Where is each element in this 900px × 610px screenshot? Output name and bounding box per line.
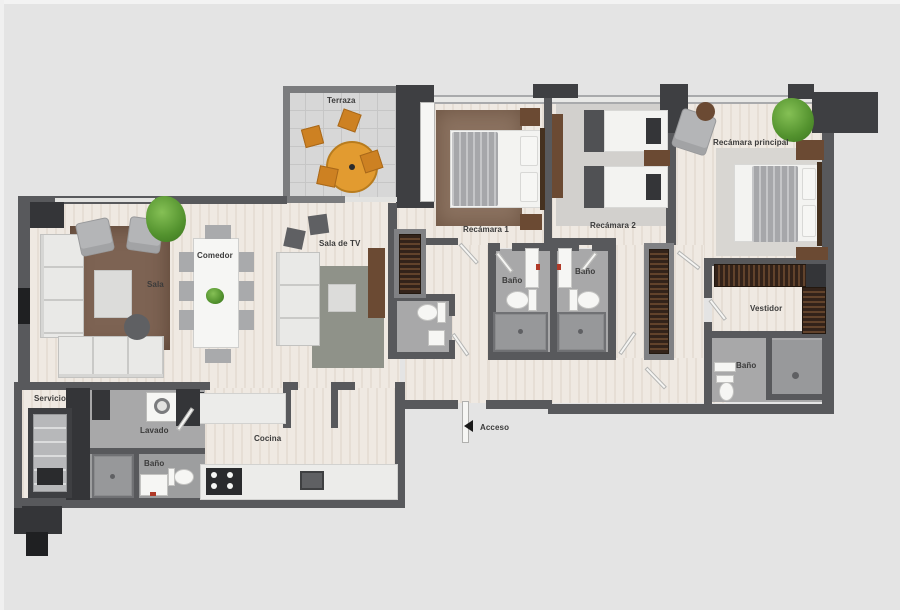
toilet-powder-tank	[437, 302, 446, 323]
wall-shower-divider-servicio	[134, 452, 139, 500]
block-below-servicio-2	[26, 532, 48, 556]
shower-master-wall-bottom	[766, 394, 826, 400]
pillow-master-a	[802, 168, 816, 200]
wall-bottom-right	[548, 404, 834, 414]
dining-chair-3	[179, 310, 194, 330]
pillow-recamara-2a	[646, 118, 661, 144]
headboard-master	[817, 162, 822, 246]
room-label-recamara-1: Recámara 1	[463, 225, 509, 234]
room-label-banyo-servicio: Baño	[144, 459, 164, 468]
wall-r1-r2	[544, 98, 552, 245]
armchair-sala-1	[75, 217, 115, 257]
faucet-banyo-left	[536, 264, 540, 270]
room-label-banyo-2: Baño	[575, 267, 595, 276]
dining-chair-4	[239, 252, 254, 272]
wall-banyos-center	[550, 243, 557, 360]
terraza-table-center	[349, 164, 355, 170]
toilet-servicio-bowl	[174, 469, 194, 485]
stool-master	[696, 102, 715, 121]
toilet-powder-bowl	[417, 304, 438, 321]
room-label-banyo-principal: Baño	[736, 361, 756, 370]
closet-hall	[649, 249, 669, 354]
shelf-lavado	[92, 390, 110, 420]
dining-chair-6	[239, 310, 254, 330]
washer-door	[154, 398, 170, 414]
blanket-recamara-1	[452, 132, 498, 206]
room-label-recamara-2: Recámara 2	[590, 221, 636, 230]
stove-burner-4	[227, 483, 233, 489]
header-block-4	[812, 92, 878, 133]
kitchen-sink	[300, 471, 324, 490]
pillow-recamara-1b	[520, 172, 538, 202]
header-block-1	[533, 84, 578, 98]
toilet-banyo-left-bowl	[506, 291, 529, 309]
room-label-lavado: Lavado	[140, 426, 169, 435]
terraza-slider-glass	[345, 197, 397, 202]
room-label-recamara-principal: Recámara principal	[713, 138, 789, 147]
floor-hall-bottom	[488, 358, 726, 403]
sofa-sala-horizontal	[58, 336, 164, 378]
acceso-arrow-icon	[464, 420, 473, 432]
wall-banyos-bottom	[488, 352, 616, 360]
nightstand-recamara-2	[644, 150, 670, 166]
wall-r1-bottom	[424, 238, 458, 245]
ottoman-tv	[328, 284, 356, 312]
room-label-banyo-1: Baño	[502, 276, 522, 285]
pillow-recamara-2b	[646, 174, 661, 200]
wall-banyo-master-left	[704, 338, 712, 404]
dining-chair-5	[239, 281, 254, 301]
wall-vestidor-left-a	[704, 258, 712, 298]
faucet-banyo-servicio	[150, 492, 156, 496]
header-block-3	[788, 84, 814, 99]
block-sala-corner	[30, 202, 64, 228]
stove-burner-2	[227, 472, 233, 478]
vanity-master	[714, 362, 736, 372]
window-leftwing	[55, 198, 155, 202]
nightstand-recamara-1b	[520, 214, 542, 230]
room-label-cocina: Cocina	[254, 434, 281, 443]
shower-master-floor	[772, 340, 822, 394]
wall-acceso-right	[486, 400, 552, 409]
sofa-sala-vertical	[40, 234, 84, 338]
plant-master	[772, 98, 814, 142]
tv-console	[368, 248, 385, 318]
wardrobe-recamara-1	[420, 102, 435, 202]
wall-servicio-left	[14, 382, 22, 508]
bed-recamara-2a-headboard	[584, 110, 604, 152]
plant-sala	[146, 196, 186, 242]
stove-burner-3	[211, 483, 217, 489]
kitchen-cabinet-end	[176, 389, 200, 426]
page-edge-left	[0, 0, 4, 610]
wall-acceso-left	[400, 400, 458, 409]
room-label-sala-de-tv: Sala de TV	[319, 239, 360, 248]
drain-banyo-right	[578, 329, 583, 334]
drain-banyo-left	[518, 329, 523, 334]
wall-terraza-left	[283, 86, 290, 203]
faucet-banyo-right	[557, 264, 561, 270]
room-label-comedor: Comedor	[197, 251, 233, 260]
dining-chair-2	[179, 281, 194, 301]
wall-r2-bottom	[552, 238, 616, 245]
side-table-sala	[124, 314, 150, 340]
side-table-tv-2	[308, 214, 329, 235]
block-below-servicio	[14, 506, 62, 534]
wall-terraza-bottom	[283, 196, 345, 203]
dresser-master	[796, 247, 828, 260]
wall-banyos-right	[608, 243, 616, 360]
wall-powder-bottom	[393, 352, 455, 359]
headboard-recamara-1	[540, 128, 545, 210]
toilet-banyo-right-bowl	[577, 291, 600, 309]
sink-powder	[428, 330, 445, 346]
closet-vestidor-top	[714, 264, 810, 287]
dining-chair-7	[205, 225, 231, 239]
drain-banyo-servicio	[110, 474, 115, 479]
wall-powder-right-b	[449, 340, 455, 359]
bed-servicio-pillow	[37, 468, 63, 485]
nightstand-recamara-1a	[520, 108, 540, 126]
sofa-tv	[276, 252, 320, 346]
room-label-vestidor: Vestidor	[750, 304, 782, 313]
nightstand-master	[796, 140, 824, 160]
toilet-banyo-right-tank	[569, 289, 578, 311]
dining-chair-8	[205, 349, 231, 363]
room-label-terraza: Terraza	[327, 96, 356, 105]
wall-terraza-top	[283, 86, 398, 93]
closet-corridor	[399, 234, 421, 294]
toilet-master-bowl	[719, 382, 734, 401]
closet-vestidor-corner	[806, 264, 826, 287]
pillow-recamara-1a	[520, 136, 538, 166]
coffee-table-sala	[94, 270, 132, 318]
blanket-master	[752, 166, 798, 242]
toilet-banyo-left-tank	[528, 289, 537, 311]
terraza-chair-3	[316, 165, 339, 188]
closet-recamara-2	[552, 114, 563, 198]
window-band-bedrooms	[434, 95, 826, 104]
apartment-floor-plan: TerrazaSalaComedorSala de TVRecámara 1Re…	[0, 0, 900, 610]
stove-burner-1	[211, 472, 217, 478]
dining-centerpiece	[206, 288, 224, 304]
room-label-servicio: Servicio	[34, 394, 66, 403]
page-edge-top	[0, 0, 900, 4]
room-label-acceso: Acceso	[480, 423, 509, 432]
room-label-sala: Sala	[147, 280, 164, 289]
column-left-black	[18, 288, 30, 324]
wall-powder-right-a	[449, 294, 455, 316]
shower-head-master	[792, 372, 799, 379]
wall-kitchen-stub-b2	[331, 382, 338, 428]
bed-recamara-2b-headboard	[584, 166, 604, 208]
side-table-tv-1	[283, 227, 306, 250]
closet-vestidor-right	[802, 287, 826, 334]
pillow-master-b	[802, 205, 816, 237]
dining-chair-1	[179, 252, 194, 272]
